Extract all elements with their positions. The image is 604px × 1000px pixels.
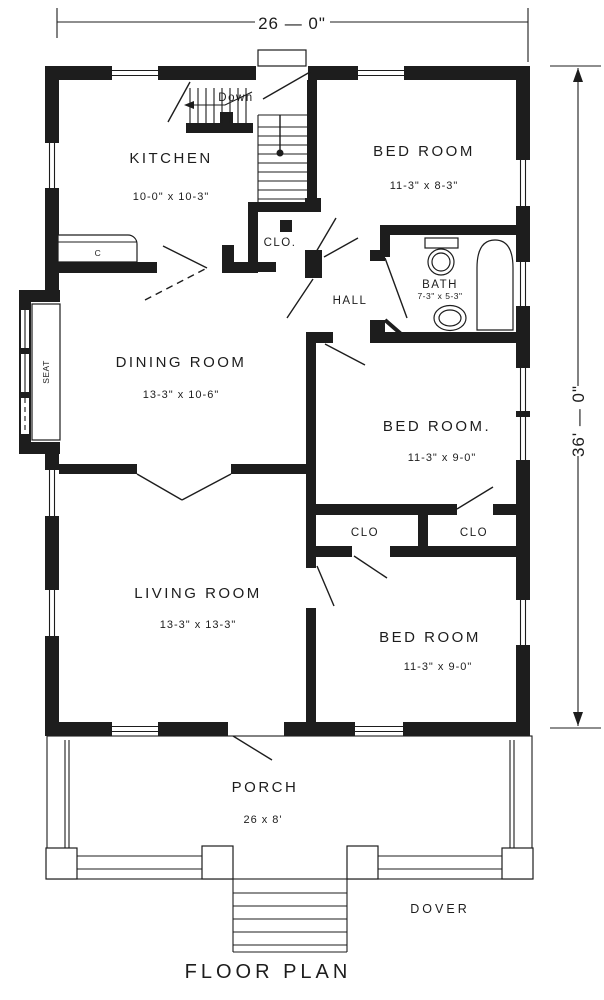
bedroom-middle-label: BED ROOM. xyxy=(383,418,491,435)
room-labels: KITCHEN 10-0" x 10-3" BED ROOM 11-3" x 8… xyxy=(116,143,492,673)
closet-right-door-leaf xyxy=(457,487,493,509)
porch-size: 26 x 8' xyxy=(243,814,282,826)
bedroom-bottom-label: BED ROOM xyxy=(379,629,481,646)
hall-door-leaf xyxy=(324,238,358,257)
porch-outline xyxy=(47,736,532,879)
living-room-label: LIVING ROOM xyxy=(134,585,262,602)
bedroom-top-size: 11-3" x 8-3" xyxy=(390,180,459,192)
swing-door-leaf xyxy=(163,246,207,268)
kitchen-cabinet-label: C xyxy=(95,248,102,258)
rear-stoop xyxy=(258,50,306,66)
plan-name: DOVER xyxy=(410,902,469,916)
kitchen-label: KITCHEN xyxy=(129,150,212,167)
bedroom-bottom-size: 11-3" x 9-0" xyxy=(404,661,473,673)
arrow-down-icon xyxy=(573,712,583,726)
staircase: Down xyxy=(184,88,307,202)
dining-room-size: 13-3" x 10-6" xyxy=(143,389,219,401)
bedroom-middle-door-leaf xyxy=(325,344,365,365)
hall-closet-door-leaf xyxy=(316,218,336,252)
porch-post xyxy=(46,848,77,879)
interior-walls xyxy=(45,66,516,722)
stairs-down-label: Down xyxy=(218,92,253,104)
dimension-width-label: 26 — 0" xyxy=(258,14,326,33)
porch-post xyxy=(347,846,378,879)
window xyxy=(45,590,59,636)
bath-size: 7-3" x 5-3" xyxy=(417,291,462,301)
closet-left-door-leaf xyxy=(354,556,387,578)
dimension-depth: 36' — 0" xyxy=(550,66,601,728)
floor-plan-page: 26 — 0" 36' — 0" xyxy=(0,0,604,1000)
window xyxy=(358,66,404,80)
hall-dining-door-leaf xyxy=(287,279,313,318)
living-room-size: 13-3" x 13-3" xyxy=(160,619,236,631)
bay-window-seat: SEAT xyxy=(19,290,60,454)
porch-post xyxy=(202,846,233,879)
front-door-opening xyxy=(228,722,284,736)
window xyxy=(112,722,158,736)
kitchen-cabinet: C xyxy=(58,235,137,262)
window xyxy=(355,722,403,736)
page-title: FLOOR PLAN xyxy=(185,961,352,983)
floor-plan-drawing: 26 — 0" 36' — 0" xyxy=(0,0,604,1000)
bath-door-leaf xyxy=(385,258,407,318)
newel-post xyxy=(277,150,284,157)
sink-tank xyxy=(425,238,458,248)
window xyxy=(516,160,530,206)
arrow-left-icon xyxy=(184,101,194,109)
living-dining-door-leaf-left xyxy=(137,474,182,500)
closet-hall-label: CLO. xyxy=(264,237,297,249)
window xyxy=(112,66,158,80)
main-stairs xyxy=(258,115,307,202)
window xyxy=(45,143,59,188)
porch: PORCH 26 x 8' xyxy=(46,736,533,952)
window xyxy=(516,262,530,306)
arrow-up-icon xyxy=(573,68,583,82)
hall-label: HALL xyxy=(333,295,368,307)
window xyxy=(516,600,530,645)
dimension-depth-label: 36' — 0" xyxy=(569,385,588,457)
bath-label: BATH xyxy=(422,279,458,291)
window-seat-label: SEAT xyxy=(41,360,51,384)
closet-right-label: CLO xyxy=(460,527,488,539)
window xyxy=(45,470,59,516)
kitchen-door-leaf xyxy=(168,82,190,122)
window xyxy=(516,417,530,460)
window xyxy=(516,368,530,411)
bedroom-middle-size: 11-3" x 9-0" xyxy=(408,452,477,464)
porch-label: PORCH xyxy=(232,779,299,796)
dining-room-label: DINING ROOM xyxy=(116,354,247,371)
bathtub-icon xyxy=(477,240,513,330)
closet-left-label: CLO xyxy=(351,527,379,539)
porch-steps xyxy=(233,879,347,952)
porch-post xyxy=(502,848,533,879)
front-door-leaf xyxy=(233,736,272,760)
bedroom-bottom-door-leaf xyxy=(317,566,334,606)
kitchen-size: 10-0" x 10-3" xyxy=(133,191,209,203)
living-dining-door-leaf-right xyxy=(182,474,231,500)
bedroom-top-label: BED ROOM xyxy=(373,143,475,160)
